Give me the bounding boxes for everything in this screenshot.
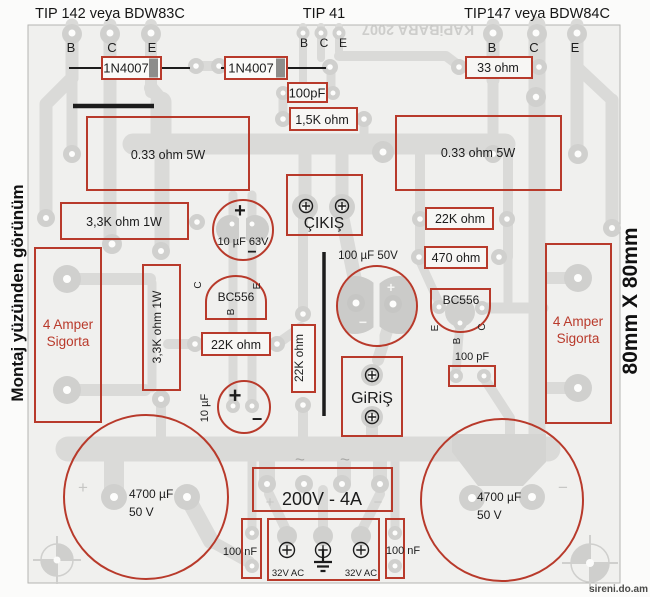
svg-text:100 pF: 100 pF [455, 351, 490, 363]
svg-text:Sigorta: Sigorta [557, 331, 600, 346]
svg-text:32V AC: 32V AC [272, 568, 304, 579]
svg-text:+: + [387, 279, 395, 295]
svg-text:4700 µF: 4700 µF [129, 487, 173, 501]
svg-text:100 nF: 100 nF [386, 545, 421, 557]
svg-text:−: − [247, 244, 256, 261]
svg-text:22K ohm: 22K ohm [435, 212, 485, 226]
svg-text:4 Amper: 4 Amper [553, 314, 604, 329]
svg-text:TIP 142 veya BDW83C: TIP 142 veya BDW83C [35, 6, 185, 22]
svg-text:10 µF 63V: 10 µF 63V [218, 236, 270, 248]
svg-text:+: + [78, 478, 88, 497]
svg-text:E: E [430, 324, 441, 331]
svg-text:B: B [452, 337, 463, 344]
svg-text:4700 µF: 4700 µF [477, 490, 521, 504]
svg-text:E: E [339, 36, 347, 50]
svg-text:4 Amper: 4 Amper [43, 317, 94, 332]
svg-text:BC556: BC556 [443, 293, 480, 307]
svg-text:1N4007: 1N4007 [103, 61, 149, 76]
svg-text:−: − [558, 478, 568, 497]
svg-text:−: − [374, 494, 383, 511]
svg-text:TIP147 veya BDW84C: TIP147 veya BDW84C [464, 6, 610, 22]
svg-text:80mm X 80mm: 80mm X 80mm [619, 227, 642, 374]
svg-text:TIP 41: TIP 41 [303, 6, 345, 22]
svg-text:200V - 4A: 200V - 4A [282, 489, 362, 509]
svg-text:0.33 ohm 5W: 0.33 ohm 5W [131, 148, 206, 162]
svg-text:1,5K ohm: 1,5K ohm [295, 113, 349, 127]
svg-text:100pF: 100pF [289, 86, 326, 101]
svg-text:+: + [229, 383, 242, 408]
svg-text:B: B [488, 40, 497, 55]
svg-text:GiRiŞ: GiRiŞ [351, 390, 393, 407]
svg-text:Montaj yüzünden görünüm: Montaj yüzünden görünüm [8, 184, 27, 401]
svg-text:KAPiBARA 2007: KAPiBARA 2007 [362, 21, 474, 37]
svg-text:C: C [193, 281, 204, 288]
svg-text:22K ohm: 22K ohm [211, 338, 261, 352]
svg-text:E: E [571, 40, 580, 55]
svg-text:+: + [266, 494, 275, 511]
svg-text:E: E [252, 282, 263, 289]
svg-text:B: B [226, 308, 237, 315]
svg-text:32V AC: 32V AC [345, 568, 377, 579]
svg-text:BC556: BC556 [218, 290, 255, 304]
svg-text:+: + [234, 200, 246, 222]
svg-text:50 V: 50 V [129, 505, 154, 519]
svg-text:C: C [320, 36, 329, 50]
svg-text:C: C [107, 40, 116, 55]
svg-text:3,3K ohm 1W: 3,3K ohm 1W [86, 215, 162, 229]
svg-text:~: ~ [295, 450, 305, 469]
svg-text:−: − [252, 409, 263, 429]
svg-text:22K ohm: 22K ohm [292, 334, 306, 382]
svg-text:~: ~ [340, 450, 350, 469]
svg-text:sireni.do.am: sireni.do.am [589, 584, 648, 595]
svg-text:33 ohm: 33 ohm [477, 61, 519, 75]
svg-text:B: B [300, 36, 308, 50]
svg-text:B: B [67, 40, 76, 55]
svg-text:C: C [477, 323, 488, 330]
svg-text:100 µF 50V: 100 µF 50V [338, 250, 398, 262]
svg-text:ÇIKIŞ: ÇIKIŞ [304, 215, 344, 232]
svg-text:0.33 ohm 5W: 0.33 ohm 5W [441, 146, 516, 160]
svg-text:100 nF: 100 nF [223, 546, 258, 558]
svg-text:−: − [359, 314, 367, 330]
svg-text:C: C [529, 40, 538, 55]
svg-text:E: E [148, 40, 157, 55]
svg-text:470 ohm: 470 ohm [432, 251, 481, 265]
svg-text:10 µF: 10 µF [199, 394, 211, 423]
svg-text:50 V: 50 V [477, 508, 502, 522]
svg-text:3,3K ohm 1W: 3,3K ohm 1W [150, 290, 164, 363]
svg-text:Sigorta: Sigorta [47, 334, 90, 349]
svg-text:1N4007: 1N4007 [228, 61, 274, 76]
